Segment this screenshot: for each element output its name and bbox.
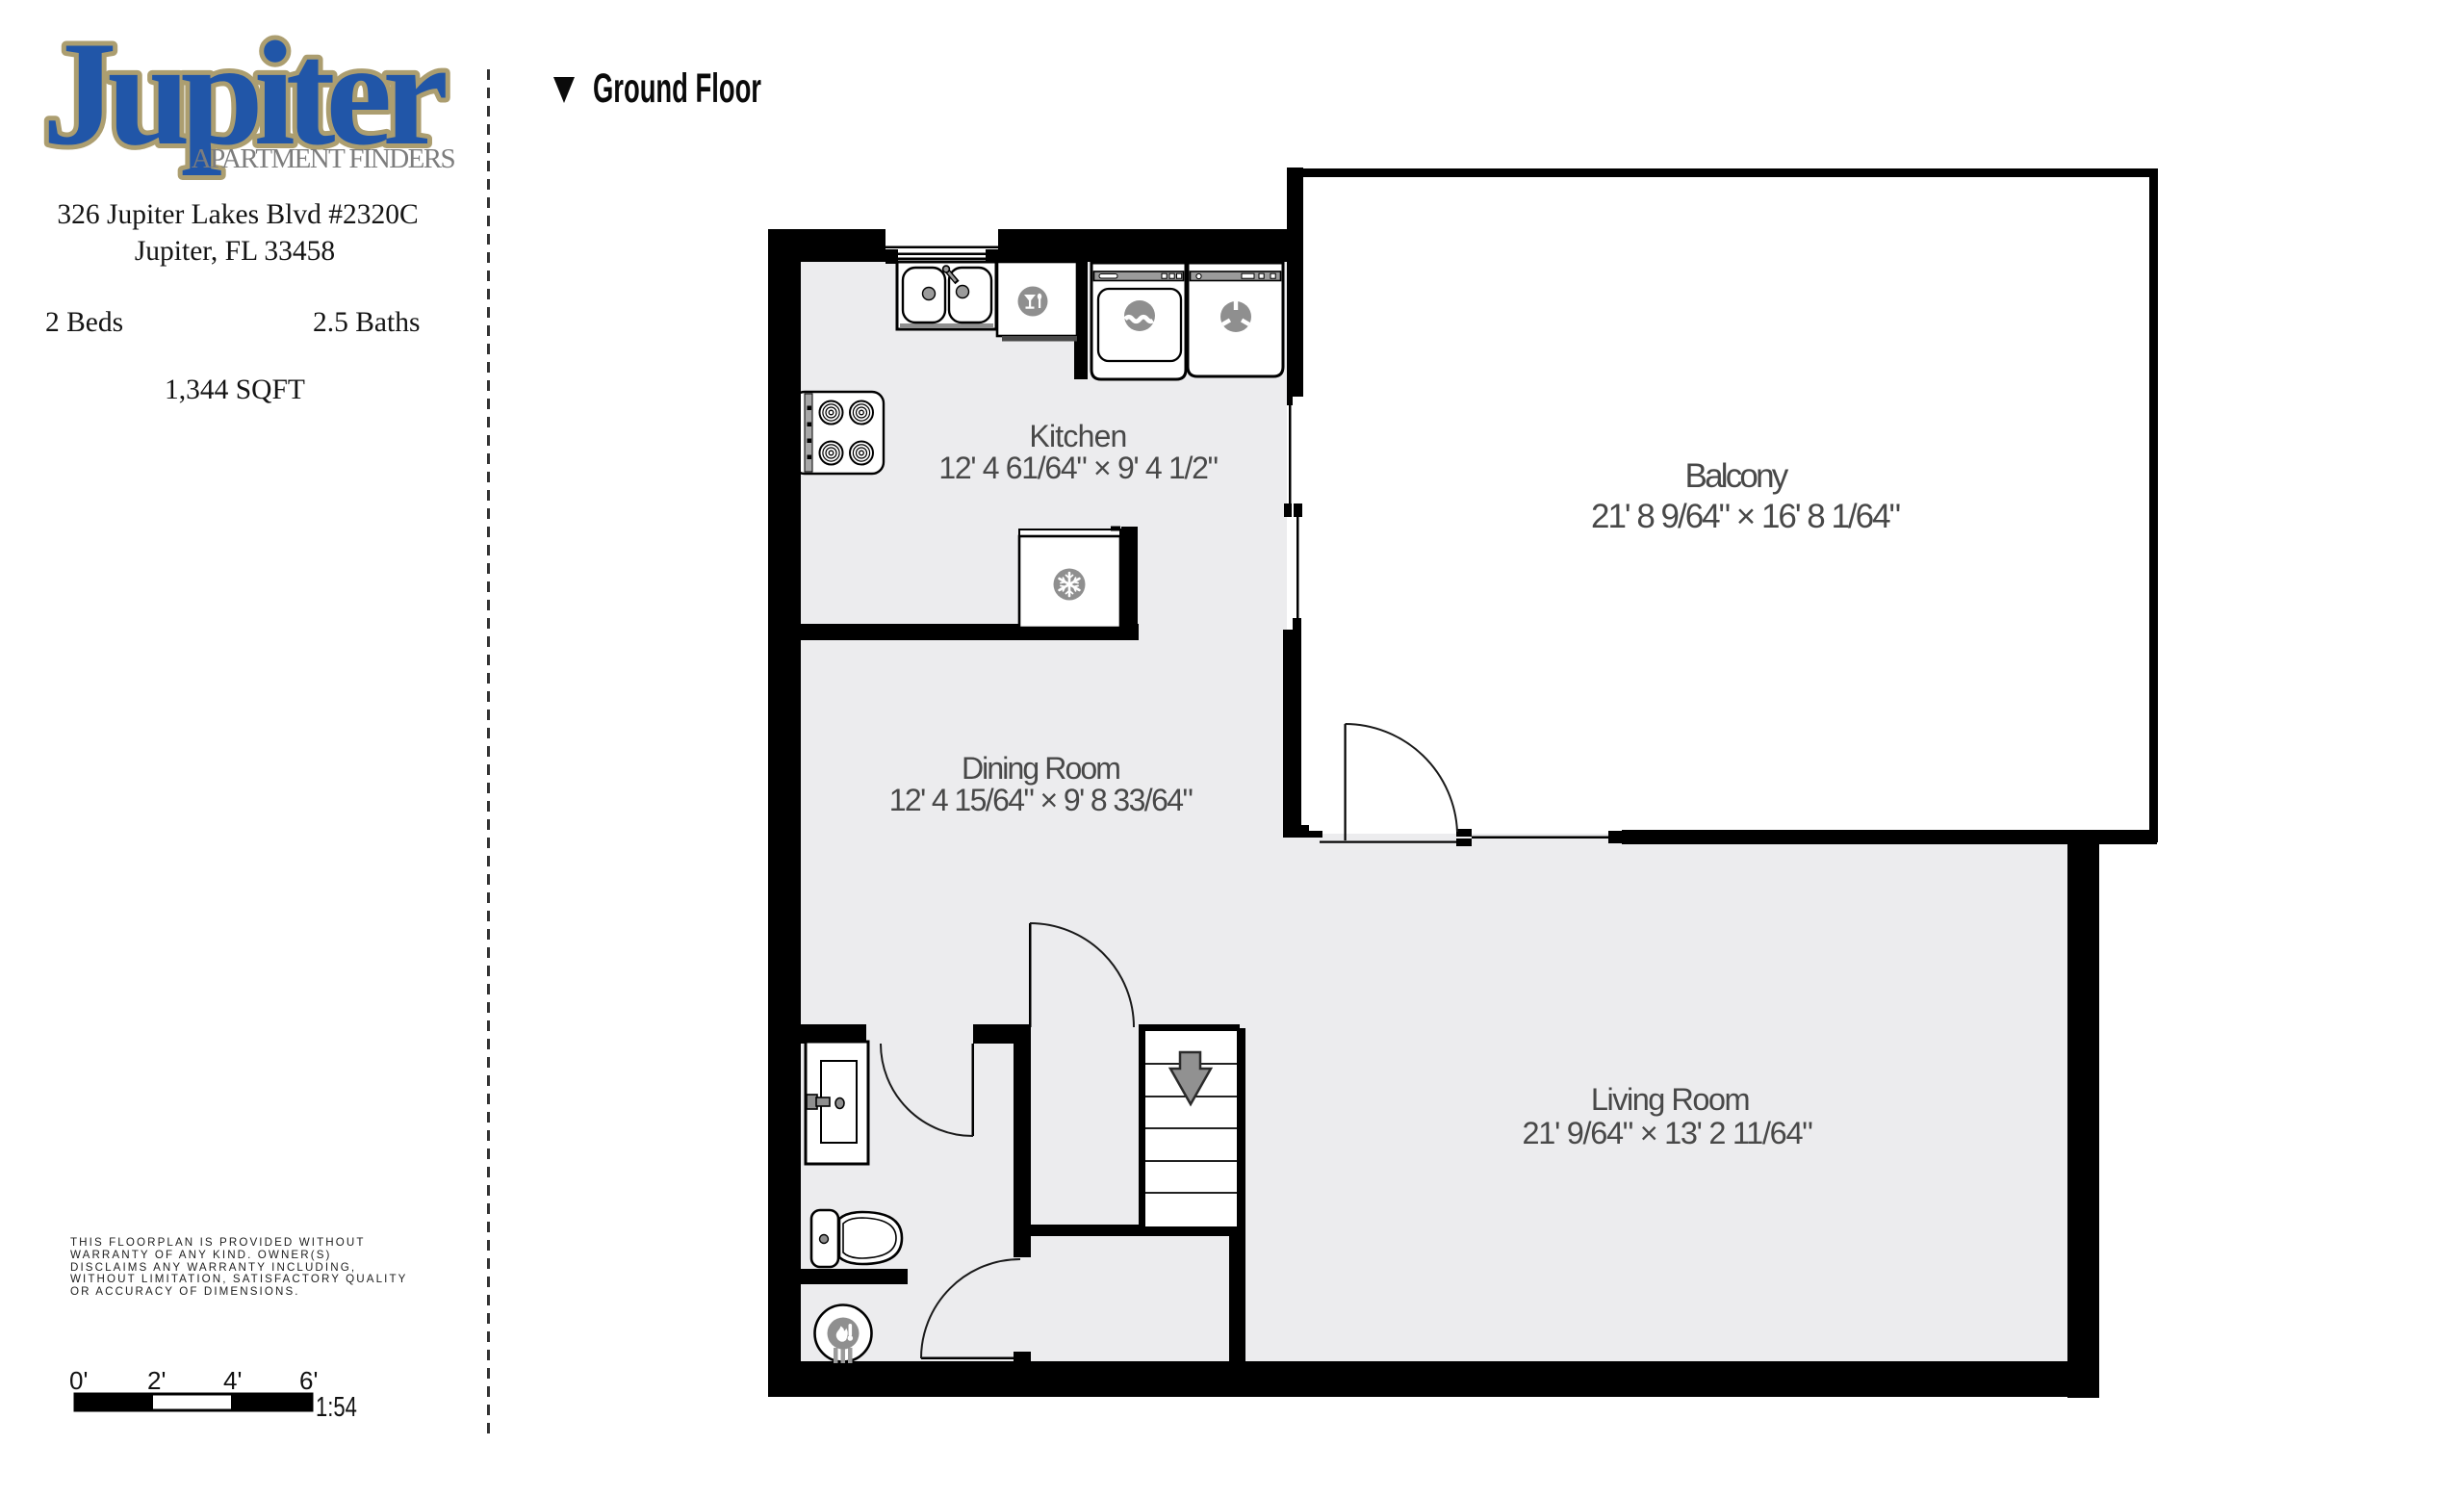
svg-text:21' 8 9/64" × 16' 8 1/64": 21' 8 9/64" × 16' 8 1/64" [1591, 498, 1900, 535]
svg-text:12' 4 15/64" × 9' 8 33/64": 12' 4 15/64" × 9' 8 33/64" [889, 783, 1193, 817]
svg-text:Balcony: Balcony [1685, 457, 1789, 495]
svg-text:Kitchen: Kitchen [1029, 419, 1126, 453]
svg-text:Living Room: Living Room [1591, 1082, 1749, 1117]
svg-text:Dining Room: Dining Room [962, 751, 1119, 786]
svg-text:21' 9/64" × 13' 2 11/64": 21' 9/64" × 13' 2 11/64" [1523, 1116, 1813, 1150]
svg-text:12' 4 61/64" × 9' 4 1/2": 12' 4 61/64" × 9' 4 1/2" [938, 451, 1217, 485]
